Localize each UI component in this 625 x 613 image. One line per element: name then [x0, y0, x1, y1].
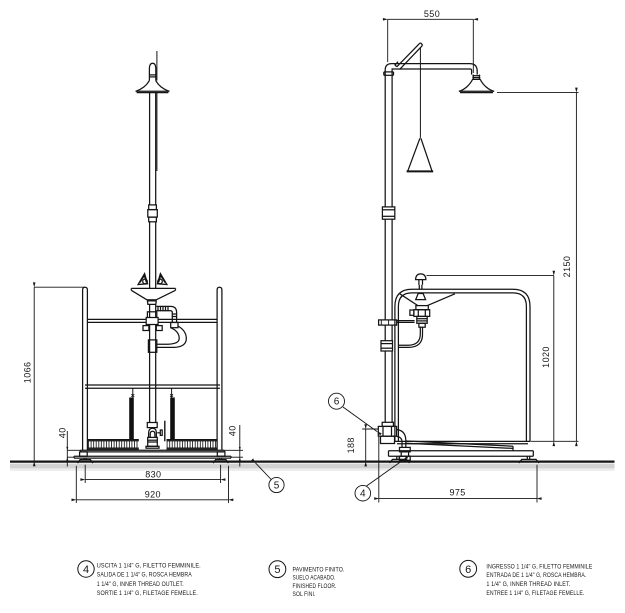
svg-text:550: 550	[424, 9, 440, 19]
svg-text:INGRESSO 1 1/4" G, FILETTO FEM: INGRESSO 1 1/4" G, FILETTO FEMMINILE	[486, 563, 592, 570]
svg-text:1020: 1020	[541, 346, 551, 368]
svg-text:FINISHED FLOOR.: FINISHED FLOOR.	[293, 583, 337, 590]
svg-text:4: 4	[360, 489, 366, 500]
svg-text:PAVIMENTO FINITO.: PAVIMENTO FINITO.	[293, 567, 345, 574]
svg-text:ENTREE 1 1/4" G, FILETAGE FEME: ENTREE 1 1/4" G, FILETAGE FEMELLE.	[486, 590, 584, 597]
svg-text:1066: 1066	[22, 362, 32, 384]
svg-text:USCITA 1 1/4" G, FILETTO FEMMI: USCITA 1 1/4" G, FILETTO FEMMINILE.	[97, 563, 201, 570]
svg-text:40: 40	[228, 425, 238, 436]
svg-text:920: 920	[145, 490, 161, 500]
svg-text:5: 5	[274, 564, 280, 576]
svg-text:40: 40	[57, 427, 67, 438]
svg-text:6: 6	[465, 564, 471, 576]
svg-text:ENTRADA DE 1 1/4" G, ROSCA HEM: ENTRADA DE 1 1/4" G, ROSCA HEMBRA.	[486, 572, 586, 579]
svg-text:1 1/4" G, INNER THREAD INLET.: 1 1/4" G, INNER THREAD INLET.	[486, 581, 570, 588]
svg-text:188: 188	[346, 437, 356, 453]
svg-text:1 1/4" G, INNER THREAD OUTLET.: 1 1/4" G, INNER THREAD OUTLET.	[97, 581, 184, 588]
svg-text:4: 4	[83, 564, 89, 576]
svg-text:SALIDA DE 1 1/4" G, ROSCA HEMB: SALIDA DE 1 1/4" G, ROSCA HEMBRA	[97, 572, 193, 579]
svg-text:6: 6	[334, 397, 340, 408]
svg-text:SORTIE 1 1/4" G, FILETAGE FEME: SORTIE 1 1/4" G, FILETAGE FEMELLE.	[97, 590, 198, 597]
svg-text:SUELO ACABADO.: SUELO ACABADO.	[293, 575, 336, 582]
svg-text:975: 975	[449, 488, 465, 498]
svg-text:2150: 2150	[562, 256, 572, 278]
svg-text:830: 830	[145, 470, 161, 480]
svg-text:SOL FINI.: SOL FINI.	[293, 591, 316, 598]
svg-text:5: 5	[274, 480, 280, 491]
